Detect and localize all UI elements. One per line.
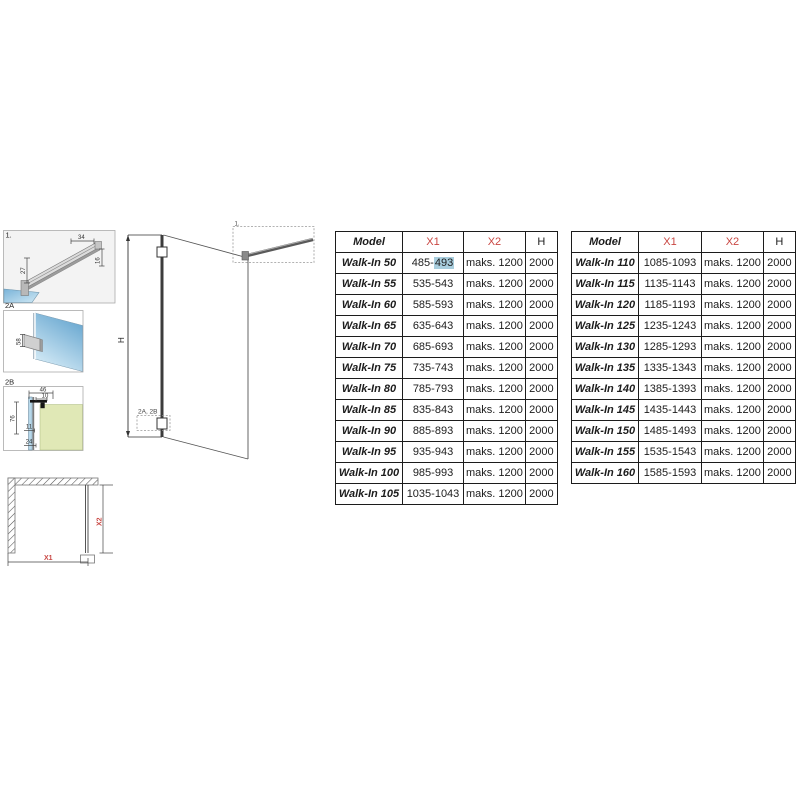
- dimension-x2: X2: [97, 485, 114, 553]
- model-cell: Walk-In 160: [572, 463, 639, 484]
- value-cell: 1335-1343: [639, 358, 702, 379]
- model-cell: Walk-In 150: [572, 421, 639, 442]
- value-cell: maks. 1200: [702, 337, 764, 358]
- header-row: ModelX1X2H: [336, 232, 558, 253]
- svg-text:16: 16: [96, 257, 102, 264]
- model-cell: Walk-In 130: [572, 337, 639, 358]
- column-header-x2: X2: [702, 232, 764, 253]
- value-cell: maks. 1200: [702, 463, 764, 484]
- table-row: Walk-In 1251235-1243maks. 12002000: [572, 316, 796, 337]
- value-cell: maks. 1200: [464, 484, 526, 505]
- value-cell: maks. 1200: [464, 421, 526, 442]
- value-cell: maks. 1200: [464, 400, 526, 421]
- value-cell: 935-943: [403, 442, 464, 463]
- table-row: Walk-In 1351335-1343maks. 12002000: [572, 358, 796, 379]
- detail-drawing-2a: 2A 58: [3, 301, 85, 373]
- column-header-x1: X1: [403, 232, 464, 253]
- value-cell: 1435-1443: [639, 400, 702, 421]
- value-cell: maks. 1200: [464, 274, 526, 295]
- value-cell: 535-543: [403, 274, 464, 295]
- value-cell: 2000: [525, 253, 557, 274]
- column-header-h: H: [763, 232, 795, 253]
- model-cell: Walk-In 125: [572, 316, 639, 337]
- value-cell: 1135-1143: [639, 274, 702, 295]
- value-cell: maks. 1200: [464, 358, 526, 379]
- table-row: Walk-In 60585-593maks. 12002000: [336, 295, 558, 316]
- model-cell: Walk-In 110: [572, 253, 639, 274]
- table-row: Walk-In 1301285-1293maks. 12002000: [572, 337, 796, 358]
- plan-view-drawing: X2 X1: [3, 468, 129, 570]
- table-row: Walk-In 1551535-1543maks. 12002000: [572, 442, 796, 463]
- model-cell: Walk-In 65: [336, 316, 403, 337]
- value-cell: 785-793: [403, 379, 464, 400]
- table-row: Walk-In 55535-543maks. 12002000: [336, 274, 558, 295]
- value-cell: 2000: [525, 463, 557, 484]
- value-cell: 2000: [525, 484, 557, 505]
- model-cell: Walk-In 100: [336, 463, 403, 484]
- glass-panel-plan: [86, 485, 89, 553]
- svg-text:10: 10: [42, 394, 49, 400]
- value-cell: 2000: [525, 274, 557, 295]
- callout-label-1: 1.: [235, 222, 240, 228]
- table-row: Walk-In 85835-843maks. 12002000: [336, 400, 558, 421]
- value-cell: maks. 1200: [702, 358, 764, 379]
- model-cell: Walk-In 155: [572, 442, 639, 463]
- value-cell: 2000: [763, 463, 795, 484]
- value-cell: maks. 1200: [464, 379, 526, 400]
- spec-table-right: ModelX1X2H Walk-In 1101085-1093maks. 120…: [571, 231, 796, 484]
- model-cell: Walk-In 140: [572, 379, 639, 400]
- table-row: Walk-In 1451435-1443maks. 12002000: [572, 400, 796, 421]
- value-cell: 635-643: [403, 316, 464, 337]
- svg-text:34: 34: [78, 235, 85, 241]
- value-cell: 2000: [525, 442, 557, 463]
- svg-text:11: 11: [26, 425, 33, 431]
- model-cell: Walk-In 75: [336, 358, 403, 379]
- selected-text: 493: [434, 257, 454, 269]
- dimension-x1: X1: [8, 553, 88, 566]
- model-cell: Walk-In 135: [572, 358, 639, 379]
- table-row: Walk-In 65635-643maks. 12002000: [336, 316, 558, 337]
- table-row: Walk-In 1601585-1593maks. 12002000: [572, 463, 796, 484]
- table-row: Walk-In 1051035-1043maks. 12002000: [336, 484, 558, 505]
- model-cell: Walk-In 80: [336, 379, 403, 400]
- model-cell: Walk-In 120: [572, 295, 639, 316]
- value-cell: 1285-1293: [639, 337, 702, 358]
- model-cell: Walk-In 85: [336, 400, 403, 421]
- value-cell: 685-693: [403, 337, 464, 358]
- value-cell: 2000: [525, 358, 557, 379]
- value-cell: 585-593: [403, 295, 464, 316]
- x2-label: X2: [97, 517, 104, 526]
- svg-text:76: 76: [11, 415, 17, 422]
- value-cell: 835-843: [403, 400, 464, 421]
- support-bar: [242, 239, 313, 261]
- value-cell: 1235-1243: [639, 316, 702, 337]
- value-cell: 2000: [525, 400, 557, 421]
- model-cell: Walk-In 105: [336, 484, 403, 505]
- bottom-clamp: [157, 418, 167, 429]
- glass-panel-outline: [164, 235, 249, 459]
- model-cell: Walk-In 60: [336, 295, 403, 316]
- table-row: Walk-In 50485-493maks. 12002000: [336, 253, 558, 274]
- value-cell: 1485-1493: [639, 421, 702, 442]
- wall-section: [40, 405, 83, 451]
- table-row: Walk-In 1101085-1093maks. 12002000: [572, 253, 796, 274]
- column-header-x1: X1: [639, 232, 702, 253]
- model-cell: Walk-In 90: [336, 421, 403, 442]
- svg-text:58: 58: [17, 338, 23, 345]
- value-cell: maks. 1200: [702, 379, 764, 400]
- value-cell: 885-893: [403, 421, 464, 442]
- value-cell: maks. 1200: [464, 463, 526, 484]
- model-cell: Walk-In 70: [336, 337, 403, 358]
- value-text: 485-: [412, 257, 434, 269]
- value-cell: 1585-1593: [639, 463, 702, 484]
- top-wall-hatch: [8, 478, 98, 485]
- column-header-model: Model: [336, 232, 403, 253]
- value-cell: maks. 1200: [702, 421, 764, 442]
- table-row: Walk-In 1151135-1143maks. 12002000: [572, 274, 796, 295]
- svg-text:24: 24: [26, 440, 33, 446]
- value-cell: 485-493: [403, 253, 464, 274]
- table-row: Walk-In 1401385-1393maks. 12002000: [572, 379, 796, 400]
- model-cell: Walk-In 115: [572, 274, 639, 295]
- table-row: Walk-In 95935-943maks. 12002000: [336, 442, 558, 463]
- value-cell: maks. 1200: [702, 253, 764, 274]
- table-row: Walk-In 1201185-1193maks. 12002000: [572, 295, 796, 316]
- model-cell: Walk-In 50: [336, 253, 403, 274]
- value-cell: maks. 1200: [464, 253, 526, 274]
- elevation-drawing: H 1. 2A, 2B: [118, 222, 318, 470]
- value-cell: 1185-1193: [639, 295, 702, 316]
- detail2a-label: 2A: [5, 301, 14, 310]
- value-cell: 2000: [763, 379, 795, 400]
- value-cell: maks. 1200: [702, 400, 764, 421]
- detail-drawing-2b: 2B 46 10 76 11: [3, 378, 85, 452]
- value-cell: maks. 1200: [702, 442, 764, 463]
- value-cell: 1085-1093: [639, 253, 702, 274]
- value-cell: 2000: [763, 400, 795, 421]
- spec-table-left: ModelX1X2H Walk-In 50485-493maks. 120020…: [335, 231, 558, 505]
- value-cell: 2000: [525, 337, 557, 358]
- x1-label: X1: [44, 555, 53, 562]
- value-cell: 2000: [763, 316, 795, 337]
- value-cell: 2000: [763, 421, 795, 442]
- column-header-x2: X2: [464, 232, 526, 253]
- model-cell: Walk-In 95: [336, 442, 403, 463]
- value-cell: 2000: [763, 358, 795, 379]
- value-cell: maks. 1200: [702, 295, 764, 316]
- detail-drawing-1: 1. 34 16 27: [3, 228, 116, 304]
- header-row: ModelX1X2H: [572, 232, 796, 253]
- column-header-h: H: [525, 232, 557, 253]
- svg-text:27: 27: [21, 267, 27, 274]
- value-cell: 2000: [763, 295, 795, 316]
- model-cell: Walk-In 55: [336, 274, 403, 295]
- value-cell: 1535-1543: [639, 442, 702, 463]
- value-cell: 2000: [763, 442, 795, 463]
- top-clamp: [157, 247, 167, 257]
- detail1-label: 1.: [6, 231, 12, 240]
- table-row: Walk-In 1501485-1493maks. 12002000: [572, 421, 796, 442]
- value-cell: maks. 1200: [702, 316, 764, 337]
- value-cell: 2000: [763, 274, 795, 295]
- detail2b-label: 2B: [5, 378, 14, 387]
- value-cell: maks. 1200: [464, 295, 526, 316]
- profile-section: [33, 397, 35, 450]
- value-cell: maks. 1200: [702, 274, 764, 295]
- spec-sheet-page: 1. 34 16 27: [0, 0, 800, 800]
- left-wall-hatch: [8, 478, 15, 553]
- value-cell: 735-743: [403, 358, 464, 379]
- table-row: Walk-In 70685-693maks. 12002000: [336, 337, 558, 358]
- value-cell: 985-993: [403, 463, 464, 484]
- value-cell: maks. 1200: [464, 337, 526, 358]
- value-cell: 1385-1393: [639, 379, 702, 400]
- height-label: H: [117, 337, 126, 343]
- value-cell: 2000: [525, 316, 557, 337]
- model-cell: Walk-In 145: [572, 400, 639, 421]
- value-cell: 2000: [525, 421, 557, 442]
- dimension-H: H: [117, 235, 162, 437]
- table-row: Walk-In 75735-743maks. 12002000: [336, 358, 558, 379]
- callout-label-2a-2b: 2A, 2B: [138, 409, 158, 416]
- value-cell: 2000: [763, 253, 795, 274]
- table-row: Walk-In 80785-793maks. 12002000: [336, 379, 558, 400]
- table-row: Walk-In 100985-993maks. 12002000: [336, 463, 558, 484]
- value-cell: 2000: [525, 295, 557, 316]
- table-row: Walk-In 90885-893maks. 12002000: [336, 421, 558, 442]
- value-cell: maks. 1200: [464, 442, 526, 463]
- value-cell: 2000: [763, 337, 795, 358]
- value-cell: maks. 1200: [464, 316, 526, 337]
- value-cell: 2000: [525, 379, 557, 400]
- value-cell: 1035-1043: [403, 484, 464, 505]
- column-header-model: Model: [572, 232, 639, 253]
